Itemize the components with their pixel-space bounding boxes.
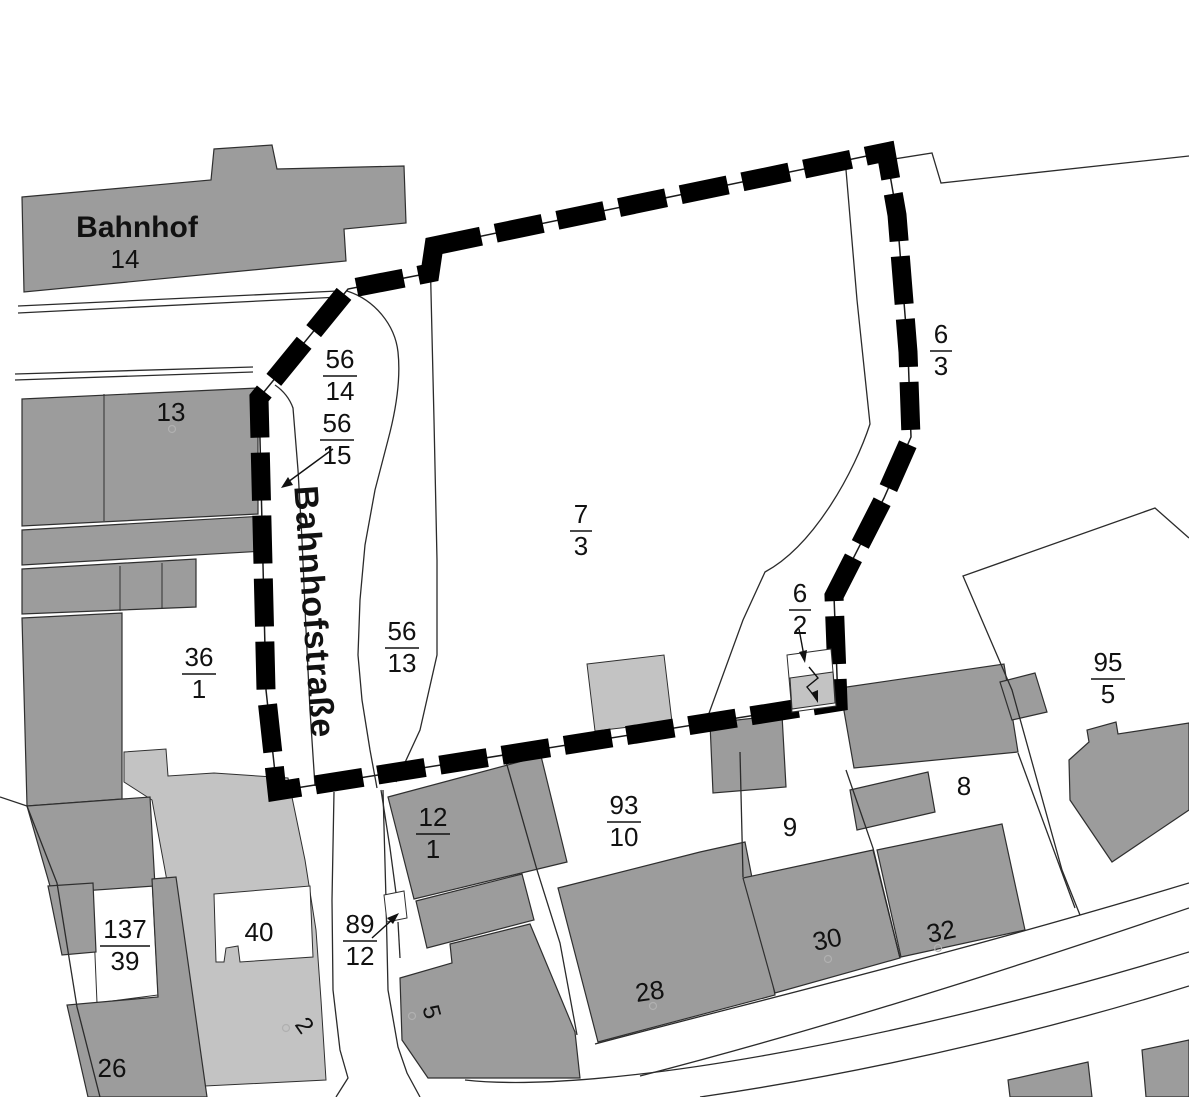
railway-line-1 — [18, 291, 338, 306]
fraction-denominator: 10 — [610, 822, 639, 852]
parcel-label-56-15: 56 15 — [320, 408, 354, 470]
building-row-north-of-8 — [840, 664, 1018, 768]
fraction-denominator: 12 — [346, 941, 375, 971]
parcel-label-7-3: 7 3 — [570, 499, 592, 561]
parcel-line-east-of-8 — [1018, 753, 1075, 908]
fraction-numerator: 89 — [346, 909, 375, 939]
strip-89-12-line-b — [398, 922, 400, 958]
parcel-6-2-fill — [790, 672, 835, 709]
parcel-label-6-3: 6 3 — [930, 319, 952, 381]
parcel-label-26: 26 — [98, 1053, 127, 1083]
parcel-label-28: 28 — [633, 974, 666, 1008]
fraction-numerator: 6 — [793, 578, 807, 608]
fraction-denominator: 39 — [111, 946, 140, 976]
parcel-6-3-west-line — [708, 158, 870, 716]
building-tall-left — [22, 613, 122, 806]
parcel-label-13: 13 — [157, 397, 186, 427]
fraction-numerator: 56 — [326, 344, 355, 374]
cadastral-map: Bahnhof 14 Bahnhofstraße 13 8 9 40 2 5 2… — [0, 0, 1189, 1097]
fraction-numerator: 93 — [610, 790, 639, 820]
parcel-56-14-bulb-edge — [347, 291, 399, 788]
north-east-parcel-line — [888, 153, 1189, 183]
light-square-building — [587, 655, 672, 731]
building-strip-b — [22, 559, 196, 614]
building-between-8-9 — [850, 772, 935, 830]
road-south-edge-4 — [700, 986, 1189, 1097]
building-sw-2 — [48, 883, 96, 955]
parcel-label-40: 40 — [245, 917, 274, 947]
fraction-denominator: 2 — [793, 610, 807, 640]
street-name-label: Bahnhofstraße — [286, 484, 342, 739]
parcel-label-89-12: 89 12 — [343, 909, 377, 971]
fraction-numerator: 6 — [934, 319, 948, 349]
fraction-denominator: 5 — [1101, 679, 1115, 709]
building-95-5 — [1069, 722, 1189, 862]
parcel-label-95-5: 95 5 — [1091, 647, 1125, 709]
fraction-numerator: 7 — [574, 499, 588, 529]
fraction-denominator: 14 — [326, 376, 355, 406]
fraction-numerator: 36 — [185, 642, 214, 672]
parcel-56-13-east-edge — [396, 250, 437, 782]
fraction-denominator: 3 — [574, 531, 588, 561]
fraction-denominator: 13 — [388, 648, 417, 678]
fraction-numerator: 56 — [323, 408, 352, 438]
building-se-corner-1 — [1008, 1062, 1092, 1097]
station-number-label: 14 — [111, 244, 140, 274]
parcel-label-9: 9 — [783, 812, 797, 842]
parcel-label-56-14: 56 14 — [323, 344, 357, 406]
parcel-label-93-10: 93 10 — [607, 790, 641, 852]
building-block-13 — [22, 388, 258, 526]
parcel-label-36-1: 36 1 — [182, 642, 216, 704]
fraction-denominator: 15 — [323, 440, 352, 470]
building-sw-1 — [27, 797, 155, 893]
parcel-label-32: 32 — [924, 914, 959, 949]
parcel-label-56-13: 56 13 — [385, 616, 419, 678]
fraction-numerator: 95 — [1094, 647, 1123, 677]
parcel-label-30: 30 — [810, 922, 845, 957]
fraction-denominator: 1 — [192, 674, 206, 704]
parcel-label-6-2: 6 2 — [789, 578, 811, 640]
railway-line-2 — [18, 297, 340, 313]
parcel-label-8: 8 — [957, 771, 971, 801]
station-name-label: Bahnhof — [76, 211, 199, 244]
fraction-numerator: 12 — [419, 802, 448, 832]
fraction-numerator: 56 — [388, 616, 417, 646]
fraction-numerator: 137 — [103, 914, 146, 944]
arrow-89-12 — [372, 919, 393, 938]
fraction-denominator: 1 — [426, 834, 440, 864]
building-se-corner-2 — [1142, 1040, 1189, 1097]
fraction-denominator: 3 — [934, 351, 948, 381]
